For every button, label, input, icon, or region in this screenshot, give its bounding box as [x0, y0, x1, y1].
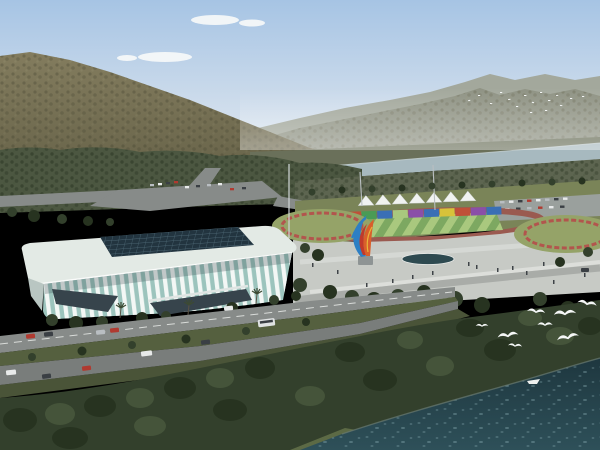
cloud: [191, 15, 239, 25]
car: [563, 198, 568, 200]
tree-clump: [206, 368, 234, 388]
car: [207, 184, 211, 186]
car: [150, 184, 154, 186]
tree-clump: [397, 331, 423, 349]
bird: [524, 95, 526, 96]
person: [432, 271, 434, 275]
tree-clump: [45, 403, 75, 425]
bird: [545, 110, 547, 111]
tree: [78, 347, 87, 356]
car: [545, 199, 550, 201]
car: [518, 200, 523, 202]
person: [512, 266, 514, 270]
tree-clump: [3, 408, 37, 432]
car: [527, 207, 532, 209]
person: [553, 280, 555, 284]
bird: [540, 92, 542, 93]
tree-clump: [84, 395, 116, 417]
rendering-canvas: [0, 0, 600, 450]
tree: [182, 335, 191, 344]
tree: [242, 327, 250, 335]
stand-block: [486, 207, 501, 216]
tree-clump: [426, 356, 454, 376]
car: [96, 329, 105, 334]
car: [6, 369, 16, 375]
stand-block: [471, 207, 486, 216]
person: [412, 275, 414, 279]
bird: [582, 96, 584, 97]
person: [392, 279, 394, 283]
person: [584, 273, 586, 277]
tree-clump: [484, 339, 516, 361]
tree: [309, 189, 316, 196]
tree: [459, 182, 466, 189]
tree: [323, 285, 337, 299]
tree-clump: [245, 357, 275, 379]
stand-block: [393, 210, 408, 219]
car: [242, 187, 246, 189]
tree: [583, 247, 593, 257]
car: [230, 188, 234, 190]
person: [543, 262, 545, 266]
car: [110, 327, 119, 332]
tree-clump: [134, 416, 166, 436]
bird: [516, 106, 518, 107]
tree-clump: [213, 399, 247, 421]
stand-block: [455, 208, 470, 217]
tree: [46, 314, 58, 326]
stand-block: [377, 210, 392, 219]
car: [44, 331, 53, 336]
car: [166, 182, 170, 184]
tree: [28, 353, 36, 361]
car: [536, 199, 541, 201]
tree: [579, 178, 586, 185]
tree: [269, 295, 279, 305]
tree: [474, 297, 490, 313]
person: [366, 283, 368, 287]
tree: [312, 249, 324, 261]
car: [185, 186, 189, 188]
car: [174, 181, 178, 183]
car: [196, 185, 200, 187]
stand-block: [439, 208, 454, 217]
person: [497, 268, 499, 272]
car: [158, 183, 162, 185]
car: [527, 200, 532, 202]
scene-rendering: [0, 0, 600, 450]
bird: [500, 92, 502, 93]
cloud: [138, 52, 192, 62]
tree: [369, 186, 376, 193]
tree-clump: [456, 319, 484, 337]
tree: [291, 291, 301, 301]
cloud: [239, 20, 265, 27]
sculpture-pedestal: [358, 256, 373, 265]
person: [526, 271, 528, 275]
tree: [549, 179, 556, 186]
tree: [533, 292, 547, 306]
tree: [293, 278, 307, 292]
car: [26, 333, 35, 338]
car: [581, 268, 589, 272]
car: [218, 183, 222, 185]
tree-clump: [335, 342, 365, 362]
tree-clump: [126, 388, 154, 408]
person: [468, 262, 470, 266]
tree: [7, 207, 17, 217]
car: [538, 207, 543, 209]
tree: [302, 318, 310, 326]
tree-clump: [363, 369, 397, 391]
cloud: [117, 55, 137, 61]
reflecting-pool: [402, 254, 454, 265]
person: [337, 270, 339, 274]
tree: [106, 218, 114, 226]
tree-clump: [295, 386, 325, 406]
stand-block: [424, 209, 439, 218]
tree: [429, 183, 436, 190]
stand-block: [408, 209, 423, 218]
car: [554, 198, 559, 200]
person: [476, 265, 478, 269]
car: [500, 201, 505, 203]
bird: [478, 95, 480, 96]
tree-clump: [518, 310, 542, 326]
tree: [339, 187, 346, 194]
person: [312, 263, 314, 267]
car: [509, 201, 514, 203]
bird: [570, 98, 572, 99]
tree: [300, 243, 310, 253]
tree-clump: [164, 377, 196, 399]
bird: [530, 112, 532, 113]
tree: [83, 216, 93, 226]
tree: [555, 257, 565, 267]
car: [560, 206, 565, 208]
tree: [489, 181, 496, 188]
tree-clump: [52, 427, 88, 449]
atmospheric-haze: [240, 88, 600, 150]
car: [549, 206, 554, 208]
tree: [28, 210, 40, 222]
tree: [399, 185, 406, 192]
bird: [548, 100, 550, 101]
tree: [519, 180, 526, 187]
tree: [57, 214, 67, 224]
car: [224, 305, 233, 310]
tree: [128, 341, 136, 349]
